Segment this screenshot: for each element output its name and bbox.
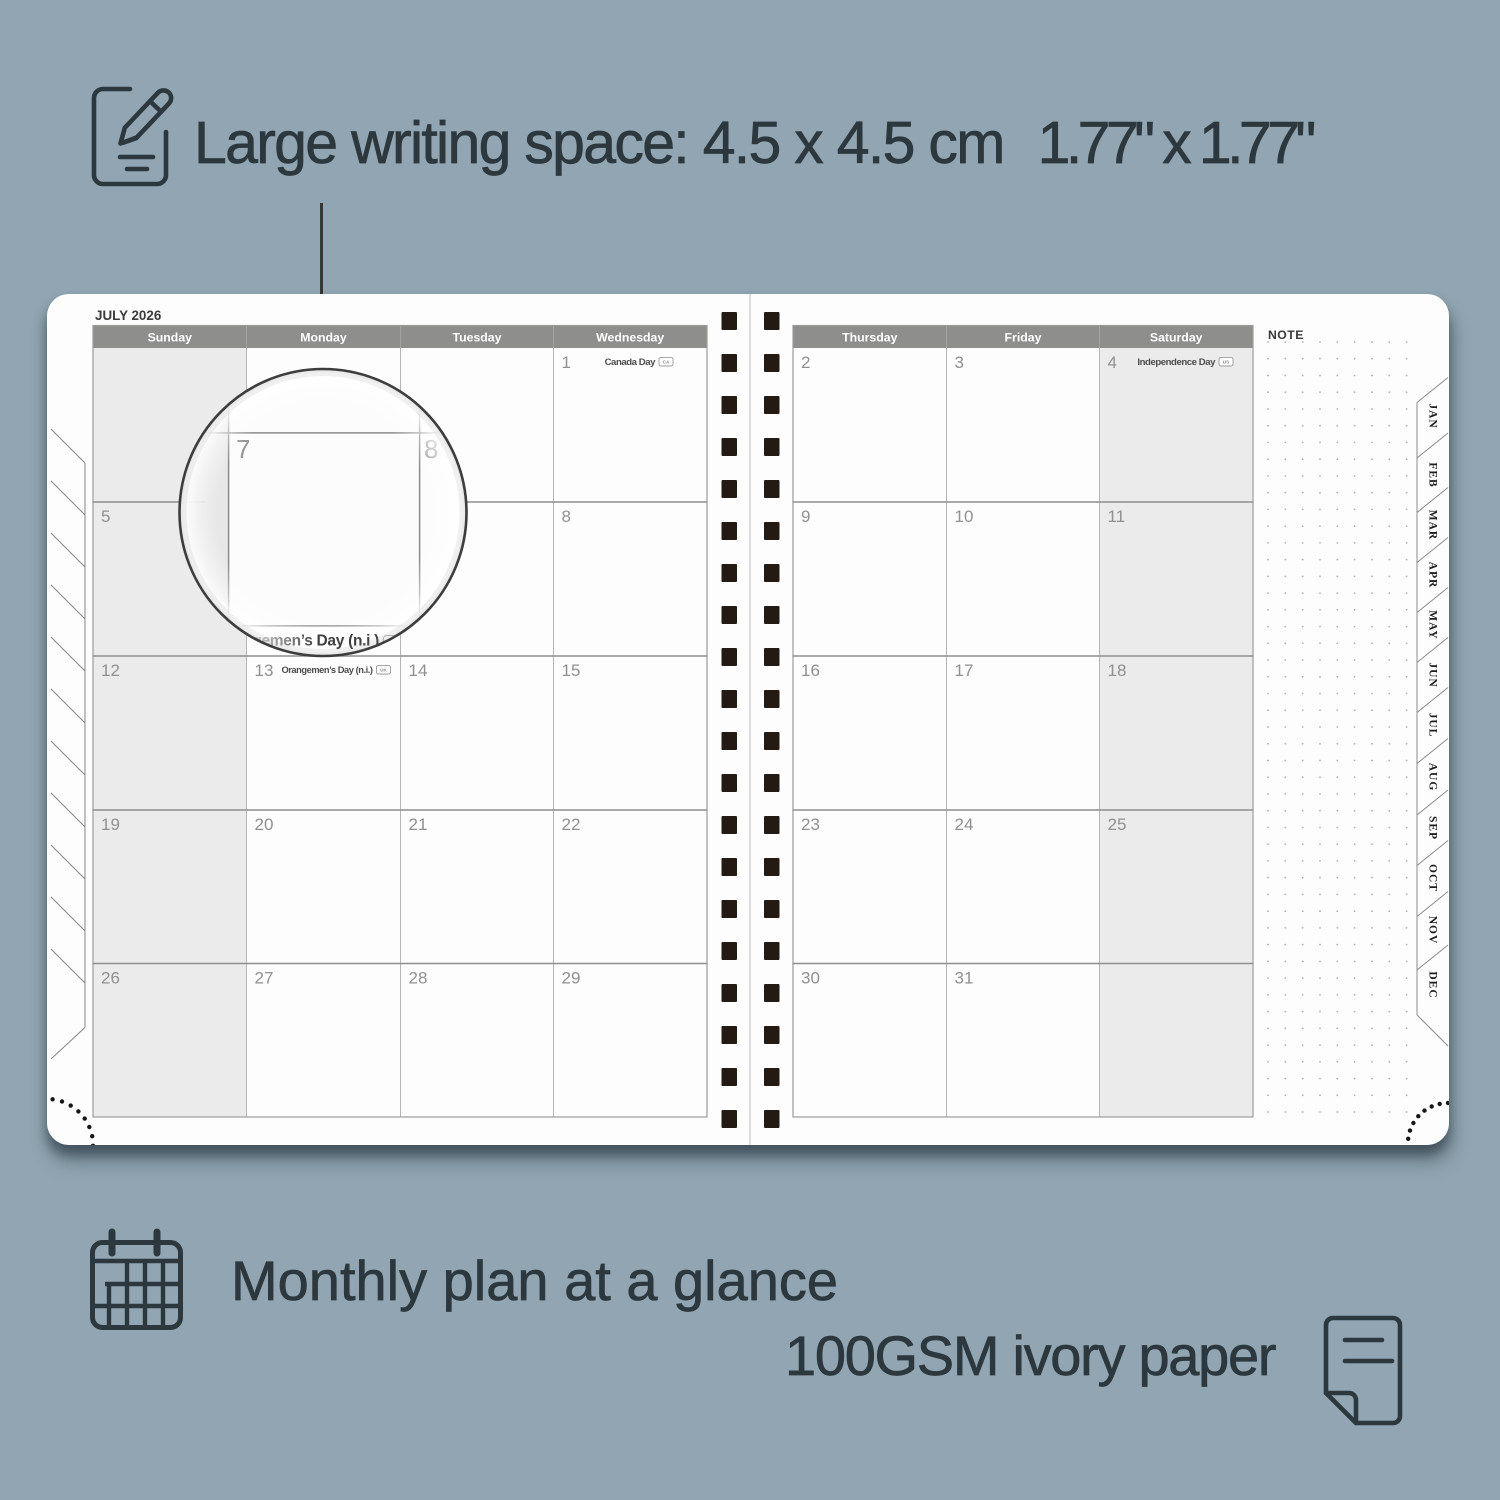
svg-text:19: 19 bbox=[101, 815, 120, 834]
svg-text:Canada Day: Canada Day bbox=[605, 357, 657, 368]
svg-text:10: 10 bbox=[955, 507, 974, 526]
svg-text:UK: UK bbox=[380, 667, 387, 672]
svg-text:26: 26 bbox=[101, 969, 120, 988]
svg-text:20: 20 bbox=[255, 815, 274, 834]
svg-text:16: 16 bbox=[801, 661, 820, 680]
svg-text:JUL: JUL bbox=[1427, 713, 1439, 738]
svg-text:14: 14 bbox=[409, 661, 428, 680]
svg-text:APR: APR bbox=[1427, 562, 1439, 589]
svg-text:21: 21 bbox=[409, 815, 428, 834]
svg-text:24: 24 bbox=[955, 815, 974, 834]
svg-text:Monday: Monday bbox=[300, 331, 347, 345]
svg-text:CA: CA bbox=[663, 359, 670, 364]
svg-text:22: 22 bbox=[562, 815, 581, 834]
svg-text:OCT: OCT bbox=[1427, 864, 1439, 892]
svg-text:15: 15 bbox=[562, 661, 581, 680]
svg-text:FEB: FEB bbox=[1427, 462, 1439, 487]
svg-text:8: 8 bbox=[562, 507, 571, 526]
svg-text:Saturday: Saturday bbox=[1150, 331, 1203, 345]
svg-text:DEC: DEC bbox=[1427, 971, 1439, 998]
svg-text:MAY: MAY bbox=[1427, 610, 1439, 639]
svg-text:NOTE: NOTE bbox=[1268, 328, 1304, 342]
svg-text:AUG: AUG bbox=[1427, 763, 1439, 792]
svg-text:25: 25 bbox=[1108, 815, 1127, 834]
svg-text:Orangemen’s Day (n.i.): Orangemen’s Day (n.i.) bbox=[281, 665, 372, 675]
svg-text:31: 31 bbox=[955, 969, 974, 988]
svg-text:SEP: SEP bbox=[1427, 816, 1439, 840]
svg-text:MAR: MAR bbox=[1427, 510, 1439, 540]
svg-text:JAN: JAN bbox=[1427, 403, 1439, 428]
svg-text:18: 18 bbox=[1108, 661, 1127, 680]
svg-text:2: 2 bbox=[801, 353, 810, 372]
svg-text:9: 9 bbox=[801, 507, 810, 526]
svg-text:23: 23 bbox=[801, 815, 820, 834]
svg-text:JULY 2026: JULY 2026 bbox=[95, 308, 161, 323]
svg-text:Sunday: Sunday bbox=[148, 331, 193, 345]
svg-text:1: 1 bbox=[562, 353, 571, 372]
svg-text:Independence Day: Independence Day bbox=[1137, 357, 1216, 368]
svg-text:29: 29 bbox=[562, 969, 581, 988]
svg-text:3: 3 bbox=[955, 353, 964, 372]
svg-text:Friday: Friday bbox=[1005, 331, 1042, 345]
svg-text:JUN: JUN bbox=[1427, 662, 1439, 687]
svg-text:4: 4 bbox=[1108, 353, 1117, 372]
svg-text:17: 17 bbox=[955, 661, 974, 680]
svg-text:5: 5 bbox=[101, 507, 110, 526]
svg-text:30: 30 bbox=[801, 969, 820, 988]
svg-text:Wednesday: Wednesday bbox=[596, 331, 664, 345]
svg-text:13: 13 bbox=[255, 661, 274, 680]
svg-text:US: US bbox=[1223, 359, 1229, 364]
svg-text:28: 28 bbox=[409, 969, 428, 988]
svg-text:11: 11 bbox=[1108, 507, 1126, 526]
svg-text:Tuesday: Tuesday bbox=[453, 331, 502, 345]
svg-text:27: 27 bbox=[255, 969, 274, 988]
svg-text:12: 12 bbox=[101, 661, 120, 680]
svg-text:NOV: NOV bbox=[1427, 916, 1439, 945]
svg-text:Thursday: Thursday bbox=[842, 331, 898, 345]
